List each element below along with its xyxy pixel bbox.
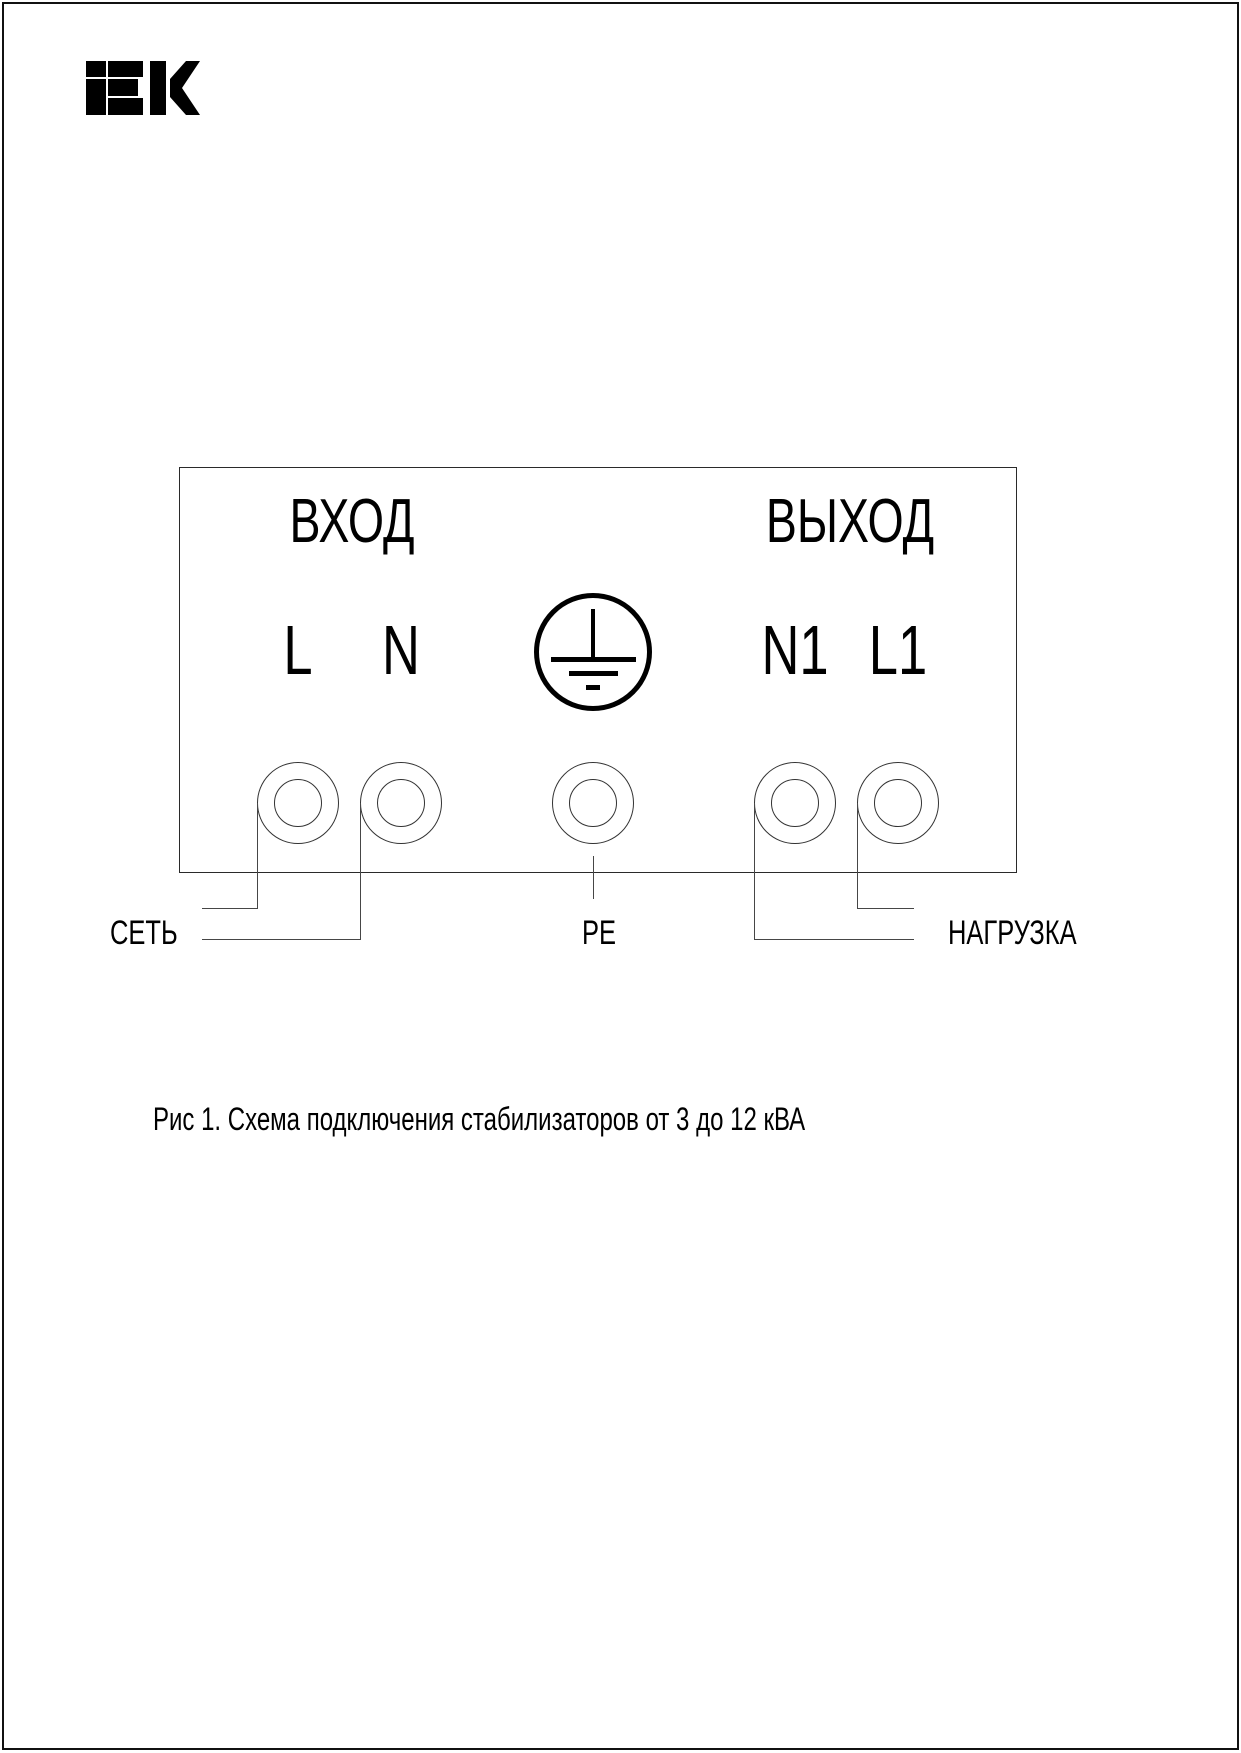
wire-n-horizontal: [202, 939, 361, 940]
terminal-l1-inner: [874, 779, 922, 827]
pe-label: PE: [449, 916, 749, 950]
terminal-l-inner: [274, 779, 322, 827]
terminal-n-inner: [377, 779, 425, 827]
input-section-label: ВХОД: [202, 491, 502, 553]
terminal-label-l1: L1: [748, 615, 1048, 685]
page-border: [2, 2, 1239, 1750]
manual-page: ВХОД ВЫХОД L N N1 L1 СЕТЬ PE НАГРУЗКА Ри…: [0, 0, 1241, 1753]
wire-l-vertical: [257, 803, 258, 908]
wire-l1-vertical: [857, 803, 858, 908]
mains-label: СЕТЬ: [110, 916, 178, 950]
wire-l1-horizontal: [857, 908, 914, 909]
iek-logo: [86, 61, 200, 115]
figure-caption: Рис 1. Схема подключения стабилизаторов …: [153, 1103, 805, 1135]
load-label: НАГРУЗКА: [948, 916, 1077, 950]
terminal-label-n: N: [251, 615, 551, 685]
wire-n-vertical: [360, 803, 361, 939]
wire-n1-vertical: [754, 803, 755, 939]
terminal-n1-inner: [771, 779, 819, 827]
wire-pe-vertical: [593, 856, 594, 899]
output-section-label: ВЫХОД: [700, 491, 1000, 553]
wire-l-horizontal: [202, 908, 258, 909]
terminal-pe-inner: [569, 779, 617, 827]
wire-n1-horizontal: [754, 939, 914, 940]
